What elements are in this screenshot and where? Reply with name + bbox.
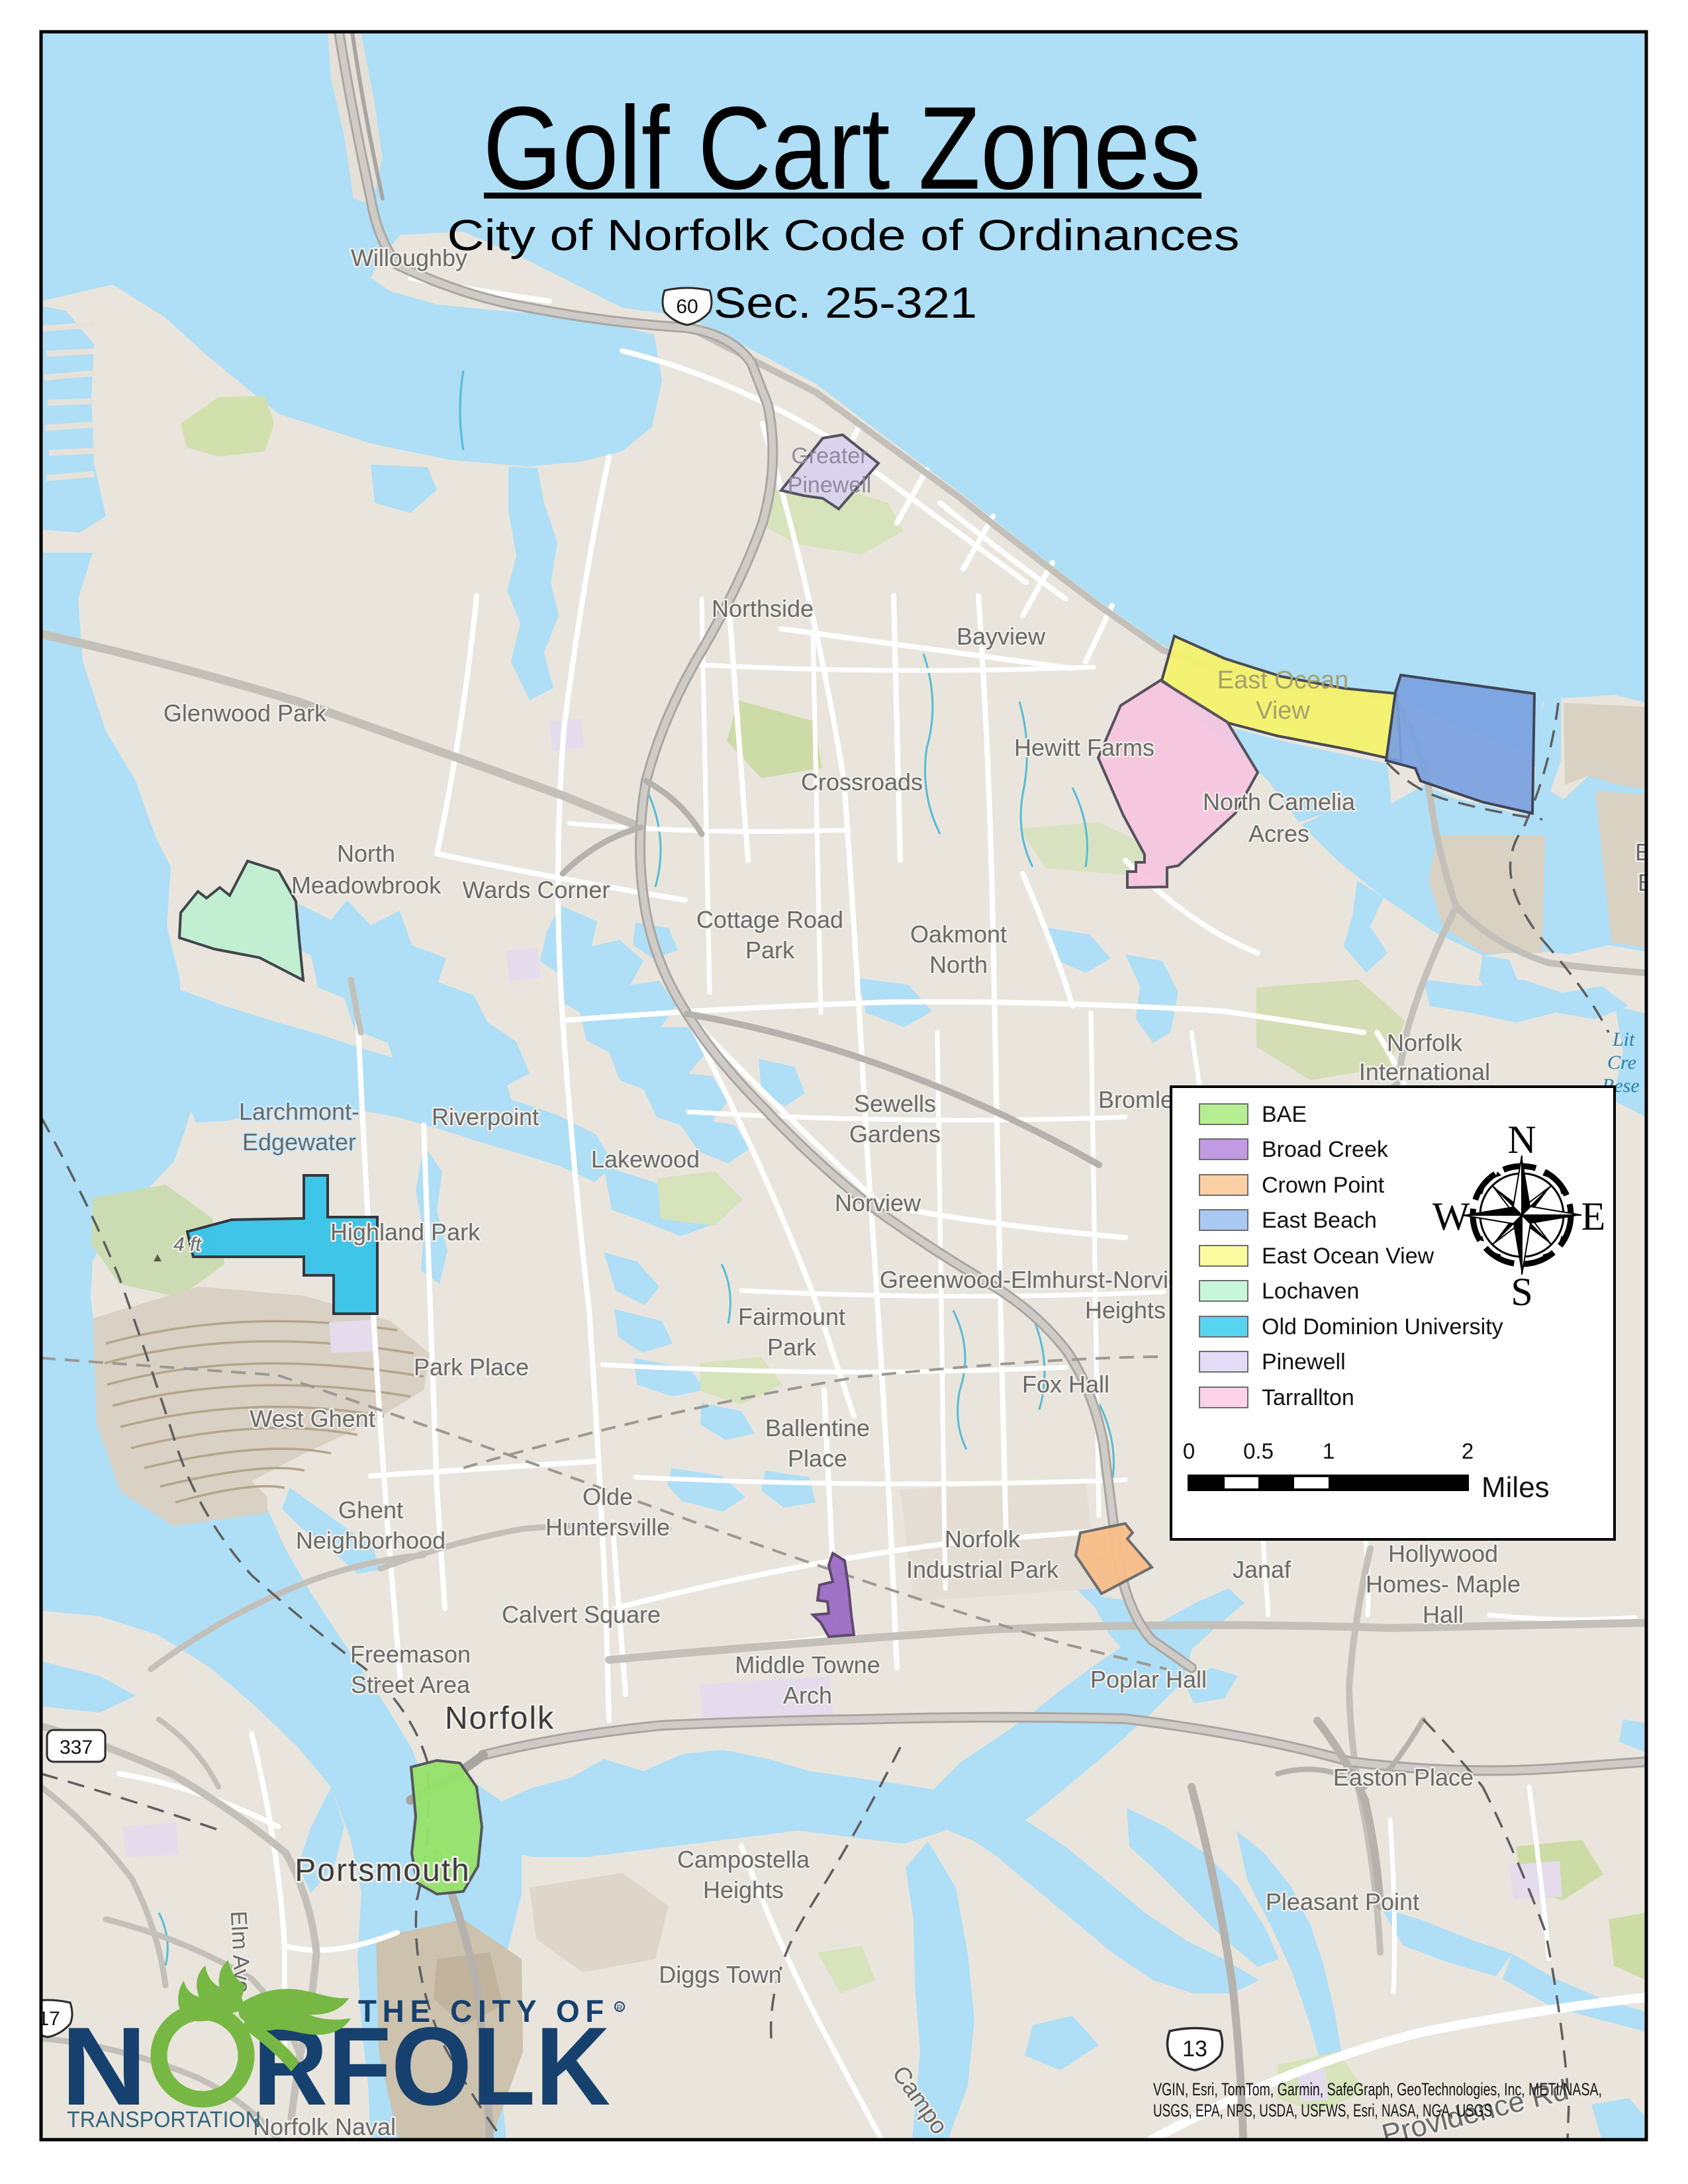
svg-text:Ghent: Ghent — [338, 1496, 403, 1524]
svg-text:Heights: Heights — [1085, 1297, 1166, 1324]
svg-text:Highland Park: Highland Park — [330, 1218, 481, 1246]
svg-text:Arch: Arch — [783, 1682, 832, 1709]
svg-text:Tarrallton: Tarrallton — [1262, 1385, 1354, 1410]
svg-text:Campostella: Campostella — [677, 1846, 810, 1873]
svg-text:E: E — [1581, 1195, 1606, 1238]
svg-text:Oakmont: Oakmont — [910, 921, 1007, 948]
svg-text:Sec. 25-321: Sec. 25-321 — [714, 278, 977, 327]
svg-text:Hollywood: Hollywood — [1388, 1540, 1498, 1567]
svg-text:Park: Park — [745, 936, 795, 964]
svg-text:City of Norfolk Code of Ordina: City of Norfolk Code of Ordinances — [447, 210, 1240, 259]
svg-text:View: View — [1256, 697, 1310, 725]
svg-text:Norview: Norview — [835, 1189, 921, 1216]
svg-text:Edgewater: Edgewater — [242, 1128, 356, 1156]
svg-text:East Ocean View: East Ocean View — [1262, 1244, 1434, 1269]
svg-text:Broad Creek: Broad Creek — [1262, 1137, 1389, 1162]
svg-text:North: North — [929, 951, 988, 978]
svg-text:Lit: Lit — [1612, 1028, 1635, 1050]
svg-text:East Beach: East Beach — [1262, 1208, 1377, 1233]
svg-text:Norfolk: Norfolk — [1387, 1029, 1463, 1056]
svg-text:Norfolk: Norfolk — [945, 1525, 1021, 1553]
svg-text:Portsmouth: Portsmouth — [295, 1853, 470, 1888]
svg-text:Lakewood: Lakewood — [591, 1146, 700, 1173]
svg-text:0: 0 — [1183, 1439, 1195, 1463]
svg-text:Hall: Hall — [1423, 1601, 1464, 1628]
svg-text:Acres: Acres — [1248, 820, 1309, 847]
svg-text:Heights: Heights — [703, 1876, 784, 1903]
svg-text:Pinewell: Pinewell — [1262, 1349, 1346, 1375]
svg-text:Sewells: Sewells — [854, 1090, 936, 1117]
svg-text:Norfolk: Norfolk — [445, 1701, 555, 1736]
svg-text:Glenwood Park: Glenwood Park — [164, 700, 327, 727]
svg-text:S: S — [1511, 1270, 1532, 1314]
svg-text:Crossroads: Crossroads — [801, 768, 923, 796]
svg-text:Street Area: Street Area — [351, 1671, 471, 1698]
svg-text:Wards Corner: Wards Corner — [463, 876, 610, 903]
svg-text:Hewitt Farms: Hewitt Farms — [1014, 734, 1154, 761]
svg-text:VGIN, Esri, TomTom, Garmin, Sa: VGIN, Esri, TomTom, Garmin, SafeGraph, G… — [1153, 2079, 1602, 2099]
svg-text:Crown Point: Crown Point — [1262, 1173, 1385, 1198]
svg-text:Easton Place: Easton Place — [1333, 1764, 1474, 1791]
svg-text:Ballentine: Ballentine — [765, 1414, 870, 1441]
svg-text:337: 337 — [60, 1737, 93, 1758]
svg-text:North: North — [337, 840, 395, 867]
svg-text:Industrial Park: Industrial Park — [906, 1556, 1059, 1583]
svg-text:Park Place: Park Place — [414, 1353, 529, 1381]
svg-text:Place: Place — [788, 1445, 847, 1472]
svg-text:Homes- Maple: Homes- Maple — [1366, 1570, 1521, 1598]
svg-text:Park: Park — [767, 1334, 817, 1361]
svg-text:Pleasant Point: Pleasant Point — [1266, 1888, 1419, 1915]
svg-text:Fox Hall: Fox Hall — [1022, 1371, 1109, 1398]
svg-text:USGS, EPA, NPS, USDA, USFWS, E: USGS, EPA, NPS, USDA, USFWS, Esri, NASA,… — [1153, 2101, 1492, 2120]
svg-text:Miles: Miles — [1481, 1471, 1550, 1504]
svg-text:Meadowbrook: Meadowbrook — [291, 872, 442, 899]
svg-text:Neighborhood: Neighborhood — [296, 1527, 445, 1554]
svg-text:Freemason: Freemason — [350, 1641, 471, 1668]
svg-text:Poplar Hall: Poplar Hall — [1090, 1666, 1207, 1693]
svg-text:Gardens: Gardens — [849, 1120, 941, 1148]
svg-text:Fairmount: Fairmount — [738, 1303, 845, 1330]
svg-text:Greater: Greater — [791, 443, 867, 469]
svg-text:N: N — [1507, 1118, 1536, 1161]
svg-text:Larchmont-: Larchmont- — [239, 1098, 359, 1125]
svg-text:Diggs Town: Diggs Town — [659, 1961, 781, 1988]
svg-text:Pinewell: Pinewell — [788, 473, 872, 498]
svg-text:North Camelia: North Camelia — [1203, 788, 1356, 815]
svg-text:Huntersville: Huntersville — [545, 1514, 670, 1541]
svg-text:Janaf: Janaf — [1233, 1556, 1291, 1583]
svg-text:Olde: Olde — [583, 1483, 633, 1510]
svg-text:13: 13 — [1182, 2036, 1207, 2062]
svg-text:4 ft: 4 ft — [173, 1234, 202, 1255]
svg-text:1: 1 — [1323, 1439, 1335, 1463]
svg-text:West Ghent: West Ghent — [250, 1405, 375, 1432]
svg-text:Bayview: Bayview — [957, 623, 1046, 650]
svg-text:BAE: BAE — [1262, 1102, 1307, 1127]
svg-text:2: 2 — [1462, 1439, 1474, 1463]
svg-text:R: R — [617, 2003, 623, 2013]
svg-text:International: International — [1359, 1058, 1490, 1085]
svg-text:Calvert Square: Calvert Square — [502, 1601, 661, 1628]
svg-text:East Ocean: East Ocean — [1217, 666, 1349, 694]
svg-text:Northside: Northside — [712, 595, 814, 622]
svg-text:Middle Towne: Middle Towne — [735, 1651, 880, 1678]
svg-text:60: 60 — [676, 296, 698, 318]
svg-text:Greenwood-Elmhurst-Norview: Greenwood-Elmhurst-Norview — [880, 1266, 1199, 1293]
svg-text:Cottage Road: Cottage Road — [696, 906, 843, 933]
svg-text:W: W — [1432, 1195, 1470, 1238]
svg-text:Old Dominion University: Old Dominion University — [1262, 1314, 1503, 1340]
svg-text:TRANSPORTATION: TRANSPORTATION — [67, 2107, 261, 2132]
svg-text:Lochaven: Lochaven — [1262, 1279, 1359, 1304]
svg-text:Riverpoint: Riverpoint — [432, 1103, 539, 1130]
svg-text:Cre: Cre — [1607, 1052, 1636, 1073]
